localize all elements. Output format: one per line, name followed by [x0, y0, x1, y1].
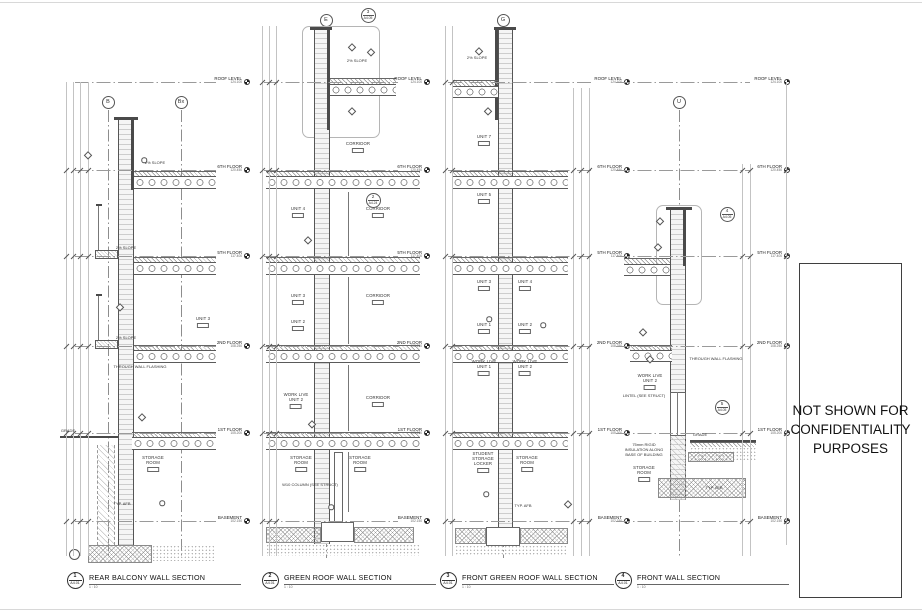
- keynote-diamond-icon: [138, 413, 146, 421]
- level-line: [616, 82, 750, 83]
- earth: [455, 545, 568, 556]
- footing: [88, 545, 152, 563]
- level-line: [75, 521, 216, 522]
- room-number-box: [478, 141, 490, 146]
- level-marker-icon: [784, 79, 790, 85]
- room-number-box: [521, 467, 533, 472]
- level-elevation: 120.450: [206, 169, 242, 173]
- footing: [321, 522, 354, 542]
- section-title-marker: 1A4.01: [67, 572, 84, 589]
- dimension-line: [80, 82, 81, 556]
- foundation: [520, 528, 568, 544]
- section-title-marker: 4A4.01: [615, 572, 632, 589]
- room-label: STORAGE ROOM: [142, 456, 164, 466]
- room-number-box: [292, 300, 304, 305]
- railing-cap: [96, 204, 102, 206]
- dimension-line: [786, 82, 787, 545]
- level-elevation: 120.450: [386, 169, 422, 173]
- keynote-diamond-icon: [639, 328, 647, 336]
- room-label: CORRIDOR: [366, 207, 390, 212]
- keynote-diamond-icon: [304, 236, 312, 244]
- floor-slab: [134, 262, 216, 275]
- level-label: ROOF LEVEL124.100: [746, 77, 782, 85]
- room-tag: CORRIDOR: [366, 294, 390, 305]
- level-elevation: 117.400: [386, 255, 422, 259]
- keynote-diamond-icon: [484, 107, 492, 115]
- room-label: UNIT 4: [291, 207, 305, 212]
- detail-callout: 5A4.05: [715, 400, 730, 415]
- floor-slab: [452, 350, 568, 363]
- annotation-note: 2% SLOPE: [467, 56, 487, 61]
- section-sheet: A4.01: [618, 581, 627, 586]
- detail-callout: 2A4.24: [366, 193, 381, 208]
- level-line: [264, 521, 398, 522]
- grade-line: [60, 436, 118, 438]
- detail-callout-sheet: A4.05: [364, 16, 373, 21]
- room-tag: UNIT 1: [477, 323, 491, 334]
- section-scale-label: 1 : 10: [284, 585, 292, 589]
- grid-bubble-label: G: [501, 17, 505, 23]
- keynote-diamond-icon: [84, 151, 92, 159]
- level-line: [264, 433, 398, 434]
- level-marker-icon: [424, 430, 430, 436]
- room-tag: WORK LIVE UNIT 1: [472, 360, 497, 376]
- detail-callout-sheet: A4.05: [723, 215, 732, 220]
- annotation-note: TYP. AFB: [113, 502, 130, 507]
- level-label: 5TH FLOOR117.400: [386, 251, 422, 259]
- room-tag: STORAGE ROOM: [349, 456, 371, 472]
- level-elevation: 102.150: [206, 520, 242, 524]
- foundation: [455, 528, 486, 544]
- room-number-box: [478, 371, 490, 376]
- room-number-box: [478, 286, 490, 291]
- room-tag: UNIT 3: [196, 317, 210, 328]
- sheet-edge-top: [0, 2, 922, 3]
- level-label: 6TH FLOOR120.450: [386, 165, 422, 173]
- level-elevation: 124.100: [746, 81, 782, 85]
- annotation-note: TYP. AFB: [705, 486, 722, 491]
- level-label: 1ST FLOOR105.200: [206, 428, 242, 436]
- level-elevation: 105.200: [386, 432, 422, 436]
- dimension-line: [573, 88, 574, 556]
- room-tag: STORAGE ROOM: [290, 456, 312, 472]
- wall-liner: [495, 30, 498, 120]
- floor-slab: [452, 176, 568, 189]
- level-line: [264, 346, 398, 347]
- section-sheet: A4.01: [70, 581, 79, 586]
- floor-slab: [266, 437, 420, 450]
- room-tag: UNIT 3: [291, 294, 305, 305]
- sheet-edge-bottom: [0, 609, 922, 610]
- level-marker-icon: [244, 518, 250, 524]
- window-mullion: [677, 392, 678, 436]
- level-label: 2ND FLOOR108.250: [386, 341, 422, 349]
- section-title: FRONT GREEN ROOF WALL SECTION: [462, 573, 614, 585]
- grid-bubble-label: E: [324, 17, 328, 23]
- dimension-line: [73, 82, 74, 556]
- level-line: [616, 346, 750, 347]
- room-number-box: [477, 468, 489, 473]
- detail-callout-sheet: A4.05: [718, 408, 727, 413]
- confidentiality-note: NOT SHOWN FOR CONFIDENTIALITY PURPOSES: [799, 263, 902, 598]
- floor-slab: [452, 262, 568, 275]
- foundation-wall: [97, 445, 115, 545]
- roof-slab: [452, 86, 498, 98]
- level-label: ROOF LEVEL124.100: [386, 77, 422, 85]
- room-label: STORAGE ROOM: [633, 466, 655, 476]
- partition-wall: [348, 277, 349, 344]
- room-tag: CORRIDOR: [366, 207, 390, 218]
- room-tag: WORK LIVE UNIT 2: [638, 374, 663, 390]
- level-line: [75, 346, 216, 347]
- rigid-insulation: [688, 452, 734, 462]
- room-label: UNIT 7: [477, 135, 491, 140]
- partition-wall: [348, 365, 349, 431]
- room-label: STORAGE ROOM: [516, 456, 538, 466]
- room-label: UNIT 2: [291, 320, 305, 325]
- section-scale-label: 1 : 10: [462, 585, 470, 589]
- room-tag: UNIT 4: [518, 280, 532, 291]
- exterior-wall: [498, 30, 513, 544]
- grid-bubble: E: [320, 14, 333, 27]
- keynote-circle-icon: [540, 322, 546, 328]
- dimension-line: [269, 26, 270, 556]
- dimension-line: [750, 164, 751, 556]
- dimension-line: [66, 82, 67, 556]
- section-sheet: A4.01: [265, 581, 274, 586]
- room-number-box: [290, 404, 302, 409]
- level-marker-icon: [424, 518, 430, 524]
- foundation: [354, 527, 414, 543]
- earth: [152, 545, 216, 561]
- room-label: UNIT 1: [477, 323, 491, 328]
- room-label: UNIT 3: [291, 294, 305, 299]
- level-label: 2ND FLOOR108.250: [206, 341, 242, 349]
- room-number-box: [478, 329, 490, 334]
- level-marker-icon: [424, 253, 430, 259]
- room-tag: UNIT 3: [477, 280, 491, 291]
- footing: [486, 527, 520, 546]
- annotation-note: TYP. AFB: [514, 504, 531, 509]
- level-label: 6TH FLOOR120.450: [206, 165, 242, 173]
- wall-liner: [683, 210, 686, 266]
- room-number-box: [292, 326, 304, 331]
- room-tag: STUDENT STORAGE LOCKER: [472, 452, 494, 473]
- level-label: 5TH FLOOR117.400: [206, 251, 242, 259]
- keynote-circle-icon: [483, 491, 489, 497]
- room-number-box: [519, 329, 531, 334]
- level-marker-icon: [244, 167, 250, 173]
- room-label: STUDENT STORAGE LOCKER: [472, 452, 494, 467]
- section-number: 1: [69, 574, 82, 581]
- annotation-note: 75mm RIGID INSULATION ALONG BASE OF BUIL…: [625, 443, 664, 457]
- floor-slab: [266, 350, 420, 363]
- level-label: BASEMENT102.150: [386, 516, 422, 524]
- floor-slab: [132, 437, 216, 450]
- grid-bubble: Bx: [175, 96, 188, 109]
- room-tag: UNIT 5: [477, 193, 491, 204]
- section-number: 3: [442, 574, 455, 581]
- level-elevation: 124.100: [206, 81, 242, 85]
- room-number-box: [519, 371, 531, 376]
- room-tag: UNIT 7: [477, 135, 491, 146]
- room-number-box: [197, 323, 209, 328]
- level-marker-icon: [244, 253, 250, 259]
- floor-slab: [452, 437, 568, 450]
- drawing-canvas: NOT SHOWN FOR CONFIDENTIALITY PURPOSES B…: [0, 0, 922, 615]
- room-label: WORK LIVE UNIT 2: [638, 374, 663, 384]
- floor-slab: [134, 350, 216, 363]
- annotation-note: 2% SLOPE: [116, 336, 136, 341]
- railing-post: [98, 295, 99, 340]
- footing: [658, 478, 746, 498]
- room-label: STORAGE ROOM: [290, 456, 312, 466]
- level-elevation: 105.200: [206, 432, 242, 436]
- annotation-note: GRADE: [61, 429, 75, 434]
- partition-wall: [348, 192, 349, 256]
- room-number-box: [354, 467, 366, 472]
- room-label: CORRIDOR: [366, 396, 390, 401]
- detail-callout: 4A4.05: [720, 207, 735, 222]
- room-number-box: [372, 213, 384, 218]
- floor-slab: [266, 262, 420, 275]
- railing-post: [98, 205, 99, 250]
- section-title-marker: 3A4.01: [440, 572, 457, 589]
- grid-bubble: B: [102, 96, 115, 109]
- section-sheet: A4.01: [443, 581, 452, 586]
- keynote-circle-icon: [486, 316, 492, 322]
- room-tag: CORRIDOR: [366, 396, 390, 407]
- level-elevation: 117.400: [206, 255, 242, 259]
- level-line: [616, 521, 750, 522]
- level-elevation: 124.100: [386, 81, 422, 85]
- room-number-box: [644, 385, 656, 390]
- section-title: FRONT WALL SECTION: [637, 573, 789, 585]
- room-number-box: [519, 286, 531, 291]
- dimension-line: [276, 26, 277, 556]
- drain-pipe: [69, 549, 80, 560]
- window-frame: [670, 392, 686, 436]
- room-tag: UNIT 2: [291, 320, 305, 331]
- level-marker-icon: [244, 343, 250, 349]
- level-label: ROOF LEVEL124.100: [206, 77, 242, 85]
- annotation-note: LINTEL (SEE STRUCT): [623, 394, 666, 399]
- level-elevation: 108.250: [386, 345, 422, 349]
- annotation-note: 2% SLOPE: [116, 246, 136, 251]
- room-label: CORRIDOR: [366, 294, 390, 299]
- annotation-note: W10 COLUMN (SEE STRUCT): [282, 483, 338, 488]
- grid-bubble-label: Bx: [178, 99, 184, 105]
- room-number-box: [372, 402, 384, 407]
- room-number-box: [295, 467, 307, 472]
- level-line: [75, 82, 216, 83]
- detail-callout: 3A4.05: [361, 8, 376, 23]
- level-elevation: 108.250: [206, 345, 242, 349]
- room-tag: STORAGE ROOM: [633, 466, 655, 482]
- room-tag: UNIT 4: [291, 207, 305, 218]
- detail-callout-sheet: A4.24: [369, 201, 378, 206]
- level-marker-icon: [244, 430, 250, 436]
- keynote-circle-icon: [159, 500, 165, 506]
- room-label: WORK LIVE UNIT 2: [513, 360, 538, 370]
- room-tag: CORRIDOR: [346, 142, 370, 153]
- room-label: UNIT 2: [518, 323, 532, 328]
- level-line: [448, 82, 594, 83]
- room-tag: STORAGE ROOM: [516, 456, 538, 472]
- annotation-note: GRADE: [693, 433, 707, 438]
- annotation-note: THROUGH WALL FLASHING: [113, 365, 166, 370]
- grid-bubble: G: [497, 14, 510, 27]
- section-title: REAR BALCONY WALL SECTION: [89, 573, 241, 585]
- level-line: [75, 433, 216, 434]
- room-label: STORAGE ROOM: [349, 456, 371, 466]
- room-number-box: [372, 300, 384, 305]
- room-label: UNIT 3: [477, 280, 491, 285]
- level-marker-icon: [424, 343, 430, 349]
- level-marker-icon: [424, 79, 430, 85]
- room-number-box: [638, 477, 650, 482]
- grid-bubble-label: B: [106, 99, 110, 105]
- earth: [266, 544, 420, 556]
- level-line: [616, 256, 750, 257]
- terrace-slab: [624, 264, 670, 276]
- dimension-line: [452, 26, 453, 556]
- dimension-line: [445, 26, 446, 556]
- keynote-diamond-icon: [475, 47, 483, 55]
- room-label: UNIT 4: [518, 280, 532, 285]
- level-line: [616, 433, 750, 434]
- level-label: ROOF LEVEL124.100: [586, 77, 622, 85]
- room-label: UNIT 3: [196, 317, 210, 322]
- section-scale-label: 1 : 10: [637, 585, 645, 589]
- room-number-box: [352, 148, 364, 153]
- room-tag: STORAGE ROOM: [142, 456, 164, 472]
- level-line: [616, 170, 750, 171]
- dimension-line: [589, 88, 590, 556]
- annotation-note: THROUGH WALL FLASHING: [689, 357, 742, 362]
- keynote-circle-icon: [141, 157, 147, 163]
- room-tag: WORK LIVE UNIT 2: [513, 360, 538, 376]
- section-number: 4: [617, 574, 630, 581]
- section-title-marker: 2A4.01: [262, 572, 279, 589]
- grid-bubble-label: U: [677, 99, 681, 105]
- annotation-note: 2% SLOPE: [347, 59, 367, 64]
- section-scale-label: 1 : 10: [89, 585, 97, 589]
- annotation-note: 2% SLOPE: [145, 161, 165, 166]
- level-elevation: 102.150: [386, 520, 422, 524]
- dimension-line: [262, 26, 263, 556]
- railing-cap: [96, 294, 102, 296]
- foundation: [266, 527, 321, 543]
- level-line: [264, 256, 398, 257]
- room-tag: UNIT 2: [518, 323, 532, 334]
- section-number: 2: [264, 574, 277, 581]
- roof-slab: [330, 84, 396, 96]
- room-label: CORRIDOR: [346, 142, 370, 147]
- floor-slab: [134, 176, 216, 189]
- keynote-diamond-icon: [564, 500, 572, 508]
- room-tag: WORK LIVE UNIT 2: [284, 393, 309, 409]
- level-line: [264, 170, 398, 171]
- room-number-box: [478, 199, 490, 204]
- level-label: 1ST FLOOR105.200: [386, 428, 422, 436]
- balcony-deck: [95, 340, 118, 349]
- level-marker-icon: [244, 79, 250, 85]
- floor-slab: [266, 176, 420, 189]
- level-line: [75, 256, 216, 257]
- room-number-box: [292, 213, 304, 218]
- room-label: WORK LIVE UNIT 1: [472, 360, 497, 370]
- level-line: [264, 82, 398, 83]
- level-marker-icon: [424, 167, 430, 173]
- room-number-box: [147, 467, 159, 472]
- grid-bubble: U: [673, 96, 686, 109]
- level-label: BASEMENT102.150: [206, 516, 242, 524]
- balcony-deck: [95, 250, 118, 259]
- keynote-circle-icon: [328, 504, 334, 510]
- room-label: WORK LIVE UNIT 2: [284, 393, 309, 403]
- room-label: UNIT 5: [477, 193, 491, 198]
- level-line: [75, 170, 216, 171]
- dimension-line: [581, 88, 582, 556]
- section-title: GREEN ROOF WALL SECTION: [284, 573, 436, 585]
